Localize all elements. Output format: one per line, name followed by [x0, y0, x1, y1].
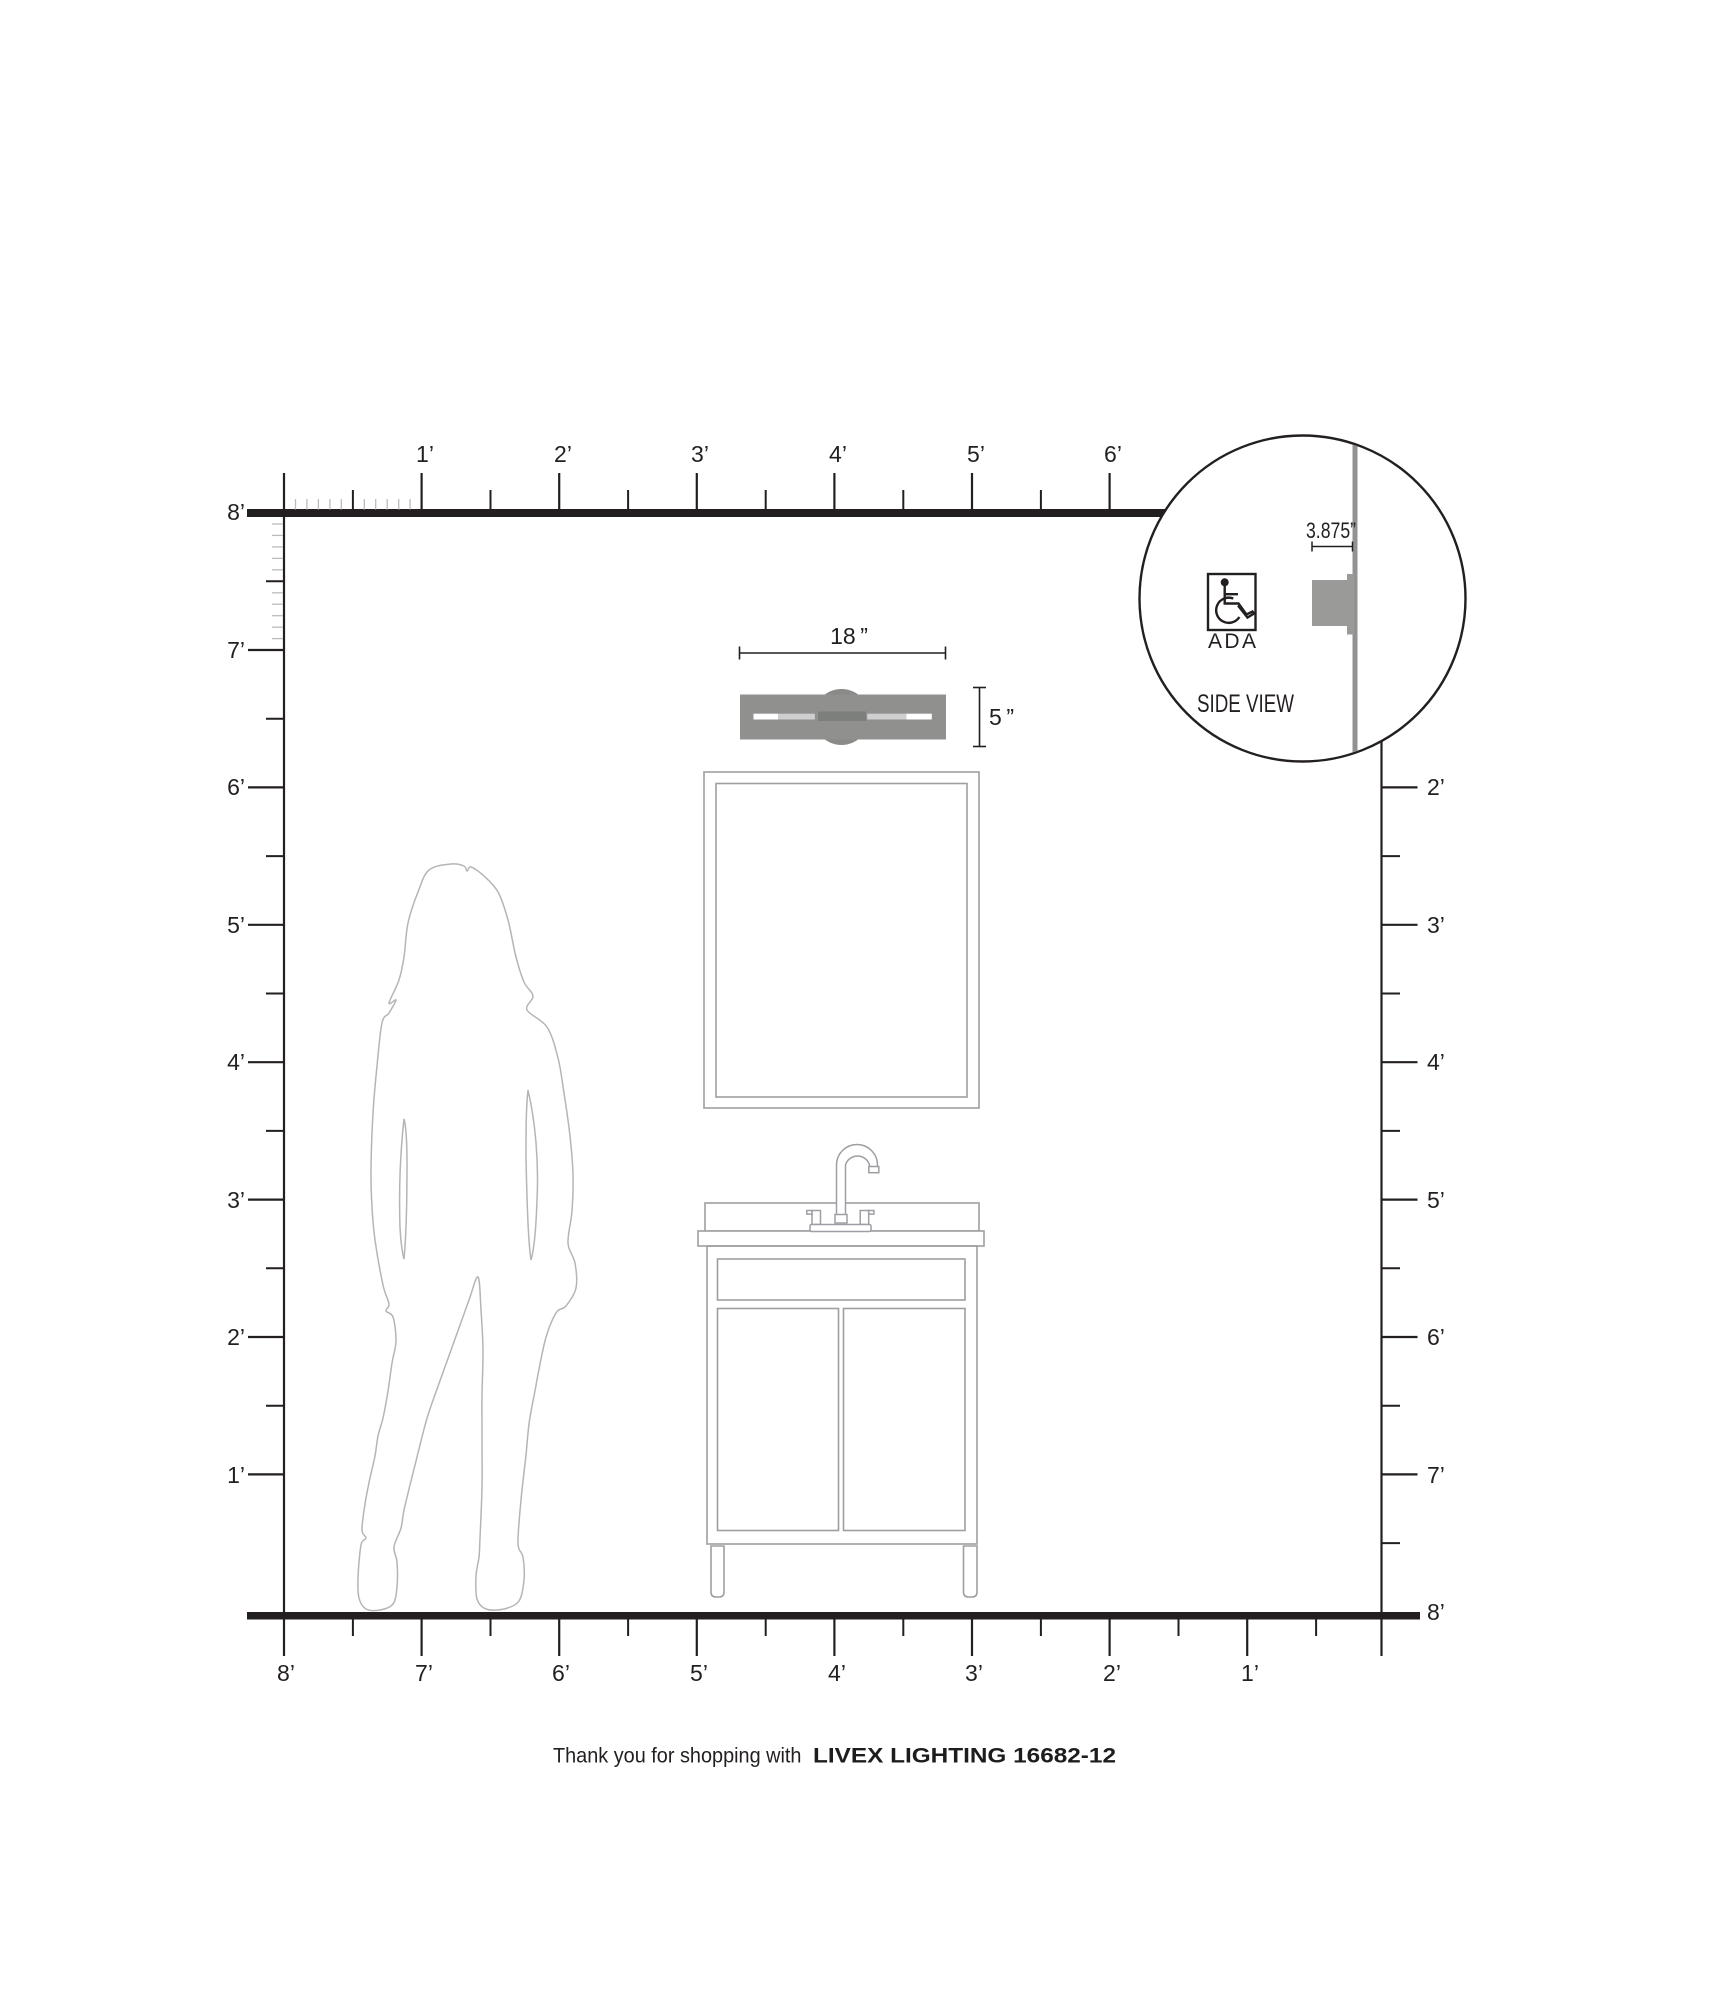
svg-text:1’: 1’	[416, 441, 434, 467]
svg-text:8’: 8’	[277, 1660, 295, 1686]
svg-text:3’: 3’	[227, 1187, 245, 1213]
svg-text:4’: 4’	[828, 1660, 846, 1686]
svg-text:2’: 2’	[227, 1324, 245, 1350]
svg-text:8’: 8’	[227, 499, 245, 525]
svg-text:Thank you for shopping with LI: Thank you for shopping with LIVEX LIGHTI…	[553, 1745, 1116, 1768]
svg-text:3.875”: 3.875”	[1306, 518, 1356, 543]
svg-text:6’: 6’	[552, 1660, 570, 1686]
svg-text:3’: 3’	[691, 441, 709, 467]
svg-text:1’: 1’	[1241, 1660, 1259, 1686]
svg-text:SIDE VIEW: SIDE VIEW	[1197, 690, 1294, 718]
svg-text:6’: 6’	[227, 774, 245, 800]
svg-text:18 ”: 18 ”	[830, 623, 868, 649]
svg-text:7’: 7’	[415, 1660, 433, 1686]
svg-text:5’: 5’	[227, 912, 245, 938]
svg-text:5’: 5’	[690, 1660, 708, 1686]
svg-text:1’: 1’	[227, 1462, 245, 1488]
svg-text:ADA: ADA	[1208, 630, 1256, 653]
svg-text:2’: 2’	[1427, 774, 1445, 800]
svg-text:4’: 4’	[227, 1049, 245, 1075]
svg-text:7’: 7’	[227, 637, 245, 663]
svg-text:7’: 7’	[1427, 1462, 1445, 1488]
svg-text:6’: 6’	[1104, 441, 1122, 467]
svg-text:3’: 3’	[1427, 912, 1445, 938]
svg-text:2’: 2’	[1103, 1660, 1121, 1686]
svg-text:3’: 3’	[965, 1660, 983, 1686]
svg-text:5’: 5’	[967, 441, 985, 467]
svg-text:8’: 8’	[1427, 1599, 1445, 1625]
svg-text:5’: 5’	[1427, 1187, 1445, 1213]
svg-text:5 ”: 5 ”	[989, 704, 1014, 730]
svg-text:4’: 4’	[1427, 1049, 1445, 1075]
svg-text:6’: 6’	[1427, 1324, 1445, 1350]
svg-text:2’: 2’	[554, 441, 572, 467]
svg-text:4’: 4’	[829, 441, 847, 467]
